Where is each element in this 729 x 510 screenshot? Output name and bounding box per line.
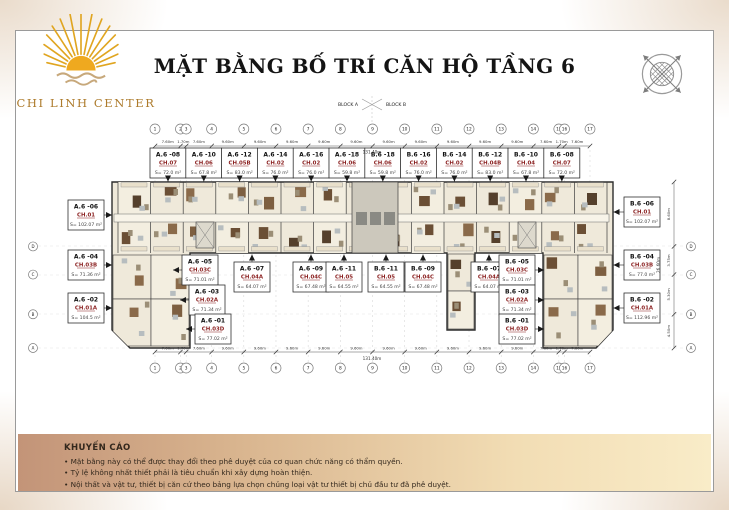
apartment-unit: CH.01 xyxy=(633,210,651,216)
apartment-area: S= 77.0 m² xyxy=(629,272,655,278)
apartment-area: S= 77.02 m² xyxy=(198,336,227,342)
brand-name: CHI LINH CENTER xyxy=(4,96,168,110)
dimension-label: 7.60m xyxy=(571,139,583,144)
apartment-unit: CH.02 xyxy=(302,161,320,167)
dimension-label: 9.60m xyxy=(511,345,523,350)
dimension-label: 7.60m xyxy=(193,139,205,144)
apartment-id: A.6 -12 xyxy=(228,152,252,159)
grid-axis-number: 12 xyxy=(466,127,472,133)
block-a-label: BLOCK A xyxy=(338,102,359,108)
apartment-area: S= 64.55 m² xyxy=(371,284,400,290)
compass-rose-icon xyxy=(634,46,690,102)
apartment-unit: CH.05 xyxy=(335,275,353,281)
dimension-label: 9.60m xyxy=(383,139,395,144)
dimension-label: 9.60m xyxy=(286,139,298,144)
apartment-unit: CH.05 xyxy=(377,275,395,281)
apartment-id: B.6 -14 xyxy=(442,152,466,159)
apartment-area: S= 104.5 m² xyxy=(71,315,100,321)
apartment-area: S= 71.01 m² xyxy=(185,277,214,283)
dimension-label: 1.70m xyxy=(556,139,568,144)
total-dimension: 131.40m xyxy=(363,356,382,361)
apartment-id: B.6 -01 xyxy=(505,318,529,325)
apartment-id: B.6 -09 xyxy=(411,266,435,273)
apartment-unit: CH.06 xyxy=(338,161,356,167)
dimension-label: 9.60m xyxy=(383,345,395,350)
apartment-unit: CH.03C xyxy=(189,268,211,274)
apartment-unit: CH.02 xyxy=(445,161,463,167)
dimension-label: 1.70m xyxy=(177,345,189,350)
grid-axis-number: 7 xyxy=(307,366,310,372)
dimension-label: 9.60m xyxy=(254,139,266,144)
apartment-area: S= 59.8 m² xyxy=(370,170,396,176)
disclaimer-band: KHUYẾN CÁO Mặt bằng này có thể được thay… xyxy=(18,434,711,491)
total-dimension: 131.40m xyxy=(363,150,382,155)
dimension-label: 9.60m xyxy=(254,345,266,350)
apartment-unit: CH.01A xyxy=(631,306,654,312)
apartment-id: B.6 -16 xyxy=(407,152,431,159)
apartment-unit: CH.06 xyxy=(374,161,392,167)
apartment-area: S= 64.07 m² xyxy=(237,284,266,290)
apartment-id: A.6 -16 xyxy=(299,152,323,159)
apartment-unit: CH.04B xyxy=(479,161,501,167)
apartment-id: A.6 -09 xyxy=(299,266,323,273)
apartment-area: S= 71.01 m² xyxy=(502,277,531,283)
dimension-label: 7.60m xyxy=(162,139,174,144)
apartment-unit: CH.05B xyxy=(229,161,251,167)
grid-axis-number: 14 xyxy=(531,366,537,372)
grid-axis-number: 16 xyxy=(562,366,568,372)
apartment-id: A.6 -14 xyxy=(263,152,287,159)
dimension-label: 7.60m xyxy=(540,139,552,144)
apartment-id: A.6 -10 xyxy=(192,152,216,159)
apartment-area: S= 112.96 m² xyxy=(626,315,658,321)
apartment-id: B.6 -04 xyxy=(630,254,654,261)
grid-axis-number: 17 xyxy=(587,127,593,133)
grid-axis-number: 6 xyxy=(275,127,278,133)
grid-axis-number: 13 xyxy=(498,366,504,372)
grid-axis-letter: A xyxy=(690,346,693,351)
apartment-id: B.6 -10 xyxy=(514,152,538,159)
apartment-id: A.6 -01 xyxy=(201,318,225,325)
grid-axis-letter: B xyxy=(32,312,35,317)
dimension-label: 9.60m xyxy=(350,139,362,144)
grid-axis-number: 9 xyxy=(371,127,374,133)
apartment-unit: CH.04C xyxy=(300,275,322,281)
grid-axis-number: 17 xyxy=(587,366,593,372)
grid-axis-number: 11 xyxy=(434,366,440,372)
dimension-label: 9.60m xyxy=(479,345,491,350)
apartment-area: S= 67.48 m² xyxy=(408,284,437,290)
grid-axis-number: 3 xyxy=(185,127,188,133)
apartment-id: B.6 -05 xyxy=(505,259,529,266)
apartment-area: S= 71.36 m² xyxy=(71,272,100,278)
wave-icon xyxy=(66,80,97,84)
side-dimension-label: 4.50m xyxy=(666,325,671,337)
apartment-unit: CH.04C xyxy=(412,275,434,281)
apartment-id: A.6 -07 xyxy=(240,266,264,273)
grid-axis-number: 11 xyxy=(434,127,440,133)
grid-axis-number: 4 xyxy=(210,127,213,133)
grid-axis-number: 10 xyxy=(402,127,408,133)
apartment-unit: CH.02 xyxy=(410,161,428,167)
dimension-label: 9.60m xyxy=(415,139,427,144)
dimension-label: 7.60m xyxy=(571,345,583,350)
grid-axis-number: 8 xyxy=(339,366,342,372)
dimension-label: 7.60m xyxy=(193,345,205,350)
dimension-label: 9.60m xyxy=(511,139,523,144)
apartment-unit: CH.02 xyxy=(266,161,284,167)
apartment-area: S= 76.0 m² xyxy=(298,170,324,176)
apartment-area: S= 67.48 m² xyxy=(296,284,325,290)
grid-axis-number: 5 xyxy=(242,366,245,372)
apartment-unit: CH.06 xyxy=(195,161,213,167)
apartment-unit: CH.04A xyxy=(241,275,264,281)
apartment-id: B.6 -11 xyxy=(374,266,398,273)
grid-axis-number: 5 xyxy=(242,127,245,133)
apartment-id: A.6 -11 xyxy=(332,266,356,273)
grid-axis-number: 10 xyxy=(402,366,408,372)
grid-axis-number: 13 xyxy=(498,127,504,133)
apartment-id: B.6 -07 xyxy=(477,266,501,273)
block-b-label: BLOCK B xyxy=(386,102,406,108)
apartment-area: S= 67.8 m² xyxy=(191,170,217,176)
dimension-label: 9.60m xyxy=(350,345,362,350)
dimension-label: 9.60m xyxy=(447,139,459,144)
dimension-label: 9.60m xyxy=(318,345,330,350)
grid-axis-number: 12 xyxy=(466,366,472,372)
apartment-id: A.6 -08 xyxy=(156,152,180,159)
apartment-unit: CH.07 xyxy=(159,161,177,167)
apartment-area: S= 59.8 m² xyxy=(334,170,360,176)
grid-axis-number: 4 xyxy=(210,366,213,372)
grid-axis-letter: D xyxy=(689,244,692,249)
dimension-label: 1.70m xyxy=(177,139,189,144)
apartment-id: B.6 -08 xyxy=(550,152,574,159)
disclaimer-heading: KHUYẾN CÁO xyxy=(64,443,701,453)
dimension-label: 7.60m xyxy=(162,345,174,350)
grid-axis-letter: C xyxy=(32,272,35,277)
apartment-unit: CH.07 xyxy=(553,161,571,167)
disclaimer-item: Tỷ lệ không nhất thiết phải là tiêu chuẩ… xyxy=(64,467,701,478)
grid-axis-letter: A xyxy=(32,346,35,351)
apartment-area: S= 76.0 m² xyxy=(405,170,431,176)
apartment-area: S= 72.0 m² xyxy=(549,170,575,176)
grid-axis-letter: D xyxy=(31,244,34,249)
apartment-unit: CH.03B xyxy=(75,263,97,269)
disclaimer-list: Mặt bằng này có thể được thay đổi theo p… xyxy=(64,456,701,490)
apartment-unit: CH.02A xyxy=(506,298,529,304)
apartment-unit: CH.02A xyxy=(196,298,219,304)
dimension-label: 9.60m xyxy=(415,345,427,350)
grid-axis-number: 6 xyxy=(275,366,278,372)
apartment-id: A.6 -06 xyxy=(74,204,98,211)
apartment-unit: CH.01A xyxy=(75,306,98,312)
grid-axis-letter: C xyxy=(690,272,693,277)
apartment-id: A.6 -18 xyxy=(335,152,359,159)
side-dimension-label: 5.30m xyxy=(666,288,671,300)
apartment-area: S= 77.02 m² xyxy=(502,336,531,342)
dimension-label: 9.60m xyxy=(222,345,234,350)
apartment-area: S= 76.0 m² xyxy=(262,170,288,176)
side-dimension-label: 8.60m xyxy=(666,208,671,220)
apartment-unit: CH.03B xyxy=(631,263,653,269)
grid-axis-number: 3 xyxy=(185,366,188,372)
disclaimer-item: Nội thất và vật tư, thiết bị căn cứ theo… xyxy=(64,479,701,490)
floor-plan-sheet: CHI LINH CENTER MẶT BẰNG BỐ TRÍ CĂN HỘ T… xyxy=(0,0,729,510)
dimension-label: 9.60m xyxy=(447,345,459,350)
apartment-unit: CH.04 xyxy=(517,161,535,167)
apartment-area: S= 71.34 m² xyxy=(502,307,531,313)
apartment-area: S= 76.0 m² xyxy=(441,170,467,176)
side-dimension-label: 3.75m xyxy=(666,254,671,266)
apartment-area: S= 102.07 m² xyxy=(70,222,102,228)
apartment-id: B.6 -03 xyxy=(505,289,529,296)
side-total-dimension: 26.60m xyxy=(656,257,661,273)
grid-axis-number: 1 xyxy=(154,366,157,372)
grid-axis-number: 7 xyxy=(307,127,310,133)
apartment-area: S= 72.0 m² xyxy=(155,170,181,176)
grid-axis-number: 8 xyxy=(339,127,342,133)
disclaimer-item: Mặt bằng này có thể được thay đổi theo p… xyxy=(64,456,701,467)
grid-axis-number: 14 xyxy=(531,127,537,133)
dimension-label: 9.60m xyxy=(479,139,491,144)
apartment-area: S= 83.0 m² xyxy=(226,170,252,176)
apartment-id: A.6 -03 xyxy=(195,289,219,296)
apartment-area: S= 64.55 m² xyxy=(329,284,358,290)
grid-axis-number: 1 xyxy=(154,127,157,133)
apartment-area: S= 83.0 m² xyxy=(477,170,503,176)
apartment-id: B.6 -06 xyxy=(630,201,654,208)
grid-axis-number: 16 xyxy=(562,127,568,133)
dimension-label: 9.60m xyxy=(222,139,234,144)
apartment-unit: CH.04A xyxy=(478,275,501,281)
dimension-label: 9.60m xyxy=(286,345,298,350)
apartment-unit: CH.03D xyxy=(202,327,225,333)
sheet-title: MẶT BẰNG BỐ TRÍ CĂN HỘ TẦNG 6 xyxy=(0,54,729,78)
apartment-unit: CH.03C xyxy=(506,268,528,274)
apartment-unit: CH.01 xyxy=(77,213,95,219)
apartment-id: A.6 -02 xyxy=(74,297,98,304)
dimension-label: 9.60m xyxy=(318,139,330,144)
apartment-id: A.6 -04 xyxy=(74,254,98,261)
dimension-label: 7.60m xyxy=(540,345,552,350)
apartment-unit: CH.03D xyxy=(506,327,529,333)
apartment-id: A.6 -05 xyxy=(188,259,212,266)
grid-axis-number: 9 xyxy=(371,366,374,372)
apartment-id: B.6 -12 xyxy=(478,152,502,159)
dimension-label: 1.70m xyxy=(556,345,568,350)
apartment-area: S= 102.07 m² xyxy=(626,219,658,225)
apartment-area: S= 71.34 m² xyxy=(192,307,221,313)
grid-axis-letter: B xyxy=(690,312,693,317)
apartment-id: B.6 -02 xyxy=(630,297,654,304)
apartment-area: S= 67.8 m² xyxy=(513,170,539,176)
